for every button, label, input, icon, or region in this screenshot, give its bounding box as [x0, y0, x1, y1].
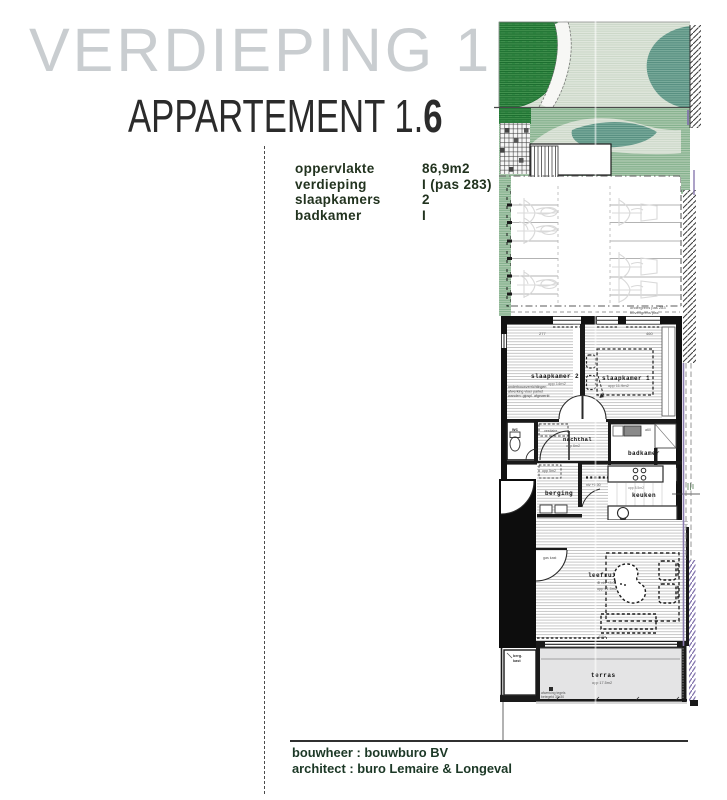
- svg-text:slaapkamer 2: slaapkamer 2: [531, 373, 579, 380]
- svg-text:berg.: berg.: [513, 654, 522, 658]
- svg-text:277: 277: [539, 331, 546, 336]
- svg-text:bovengrens pas: bovengrens pas: [630, 310, 658, 315]
- svg-text:onderbouwverrichtingen: onderbouwverrichtingen: [508, 385, 546, 389]
- svg-text:⊕ niv +3.03: ⊕ niv +3.03: [597, 581, 617, 585]
- svg-text:opp 6m2: opp 6m2: [566, 444, 580, 448]
- svg-text:kast: kast: [513, 659, 521, 663]
- svg-text:wc: wc: [511, 427, 519, 432]
- svg-text:keuken: keuken: [632, 492, 656, 499]
- svg-text:opp 8.5m2: opp 8.5m2: [628, 486, 644, 490]
- svg-text:opp 11.9m2: opp 11.9m2: [608, 383, 630, 388]
- svg-text:460: 460: [646, 331, 653, 336]
- svg-text:afwerking vloer parket: afwerking vloer parket: [508, 390, 543, 394]
- svg-text:vestiaire: vestiaire: [544, 429, 557, 433]
- svg-text:opp 5m2: opp 5m2: [542, 469, 556, 473]
- svg-text:berging: berging: [545, 490, 573, 497]
- svg-text:opp 41.5m2: opp 41.5m2: [597, 587, 617, 591]
- svg-text:niv +0.00: niv +0.00: [586, 483, 601, 487]
- svg-text:opp 14m2: opp 14m2: [548, 381, 567, 386]
- svg-text:gas kast: gas kast: [543, 556, 556, 560]
- svg-text:wanden: gipspl. afgewerkt: wanden: gipspl. afgewerkt: [508, 394, 550, 398]
- svg-text:betegeld 30x30: betegeld 30x30: [541, 695, 564, 699]
- svg-text:nachthal: nachthal: [563, 436, 592, 443]
- svg-text:slaapkamer 1: slaapkamer 1: [602, 375, 650, 382]
- svg-text:a60: a60: [645, 428, 651, 432]
